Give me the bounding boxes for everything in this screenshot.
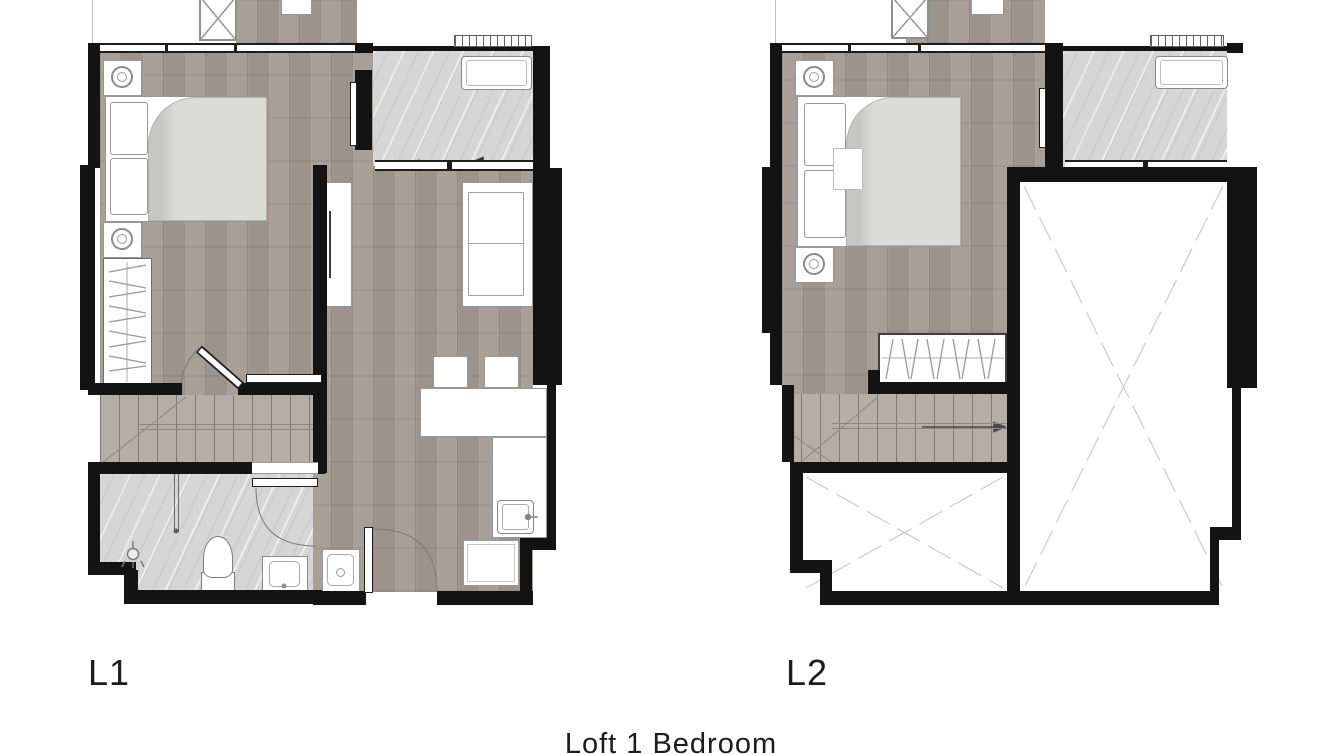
l1-shower-glass-handle-icon — [174, 529, 179, 534]
l2-label: L2 — [786, 655, 828, 691]
l1-vanity-faucet-icon — [282, 584, 287, 589]
l1-kitchen-faucet-icon — [526, 515, 539, 520]
floor-plan-canvas: L1 L2 Loft 1 Bedroom — [0, 0, 1342, 754]
l1-label: L1 — [88, 655, 130, 691]
l1-stair-door-leaf — [199, 349, 241, 386]
page-title: Loft 1 Bedroom — [0, 730, 1342, 754]
over-linework — [0, 0, 1342, 754]
l1-wardrobe-hangers-icon — [109, 262, 146, 382]
l1-shower-icon — [122, 541, 144, 568]
l2-wardrobe-hangers-icon — [882, 339, 1004, 379]
